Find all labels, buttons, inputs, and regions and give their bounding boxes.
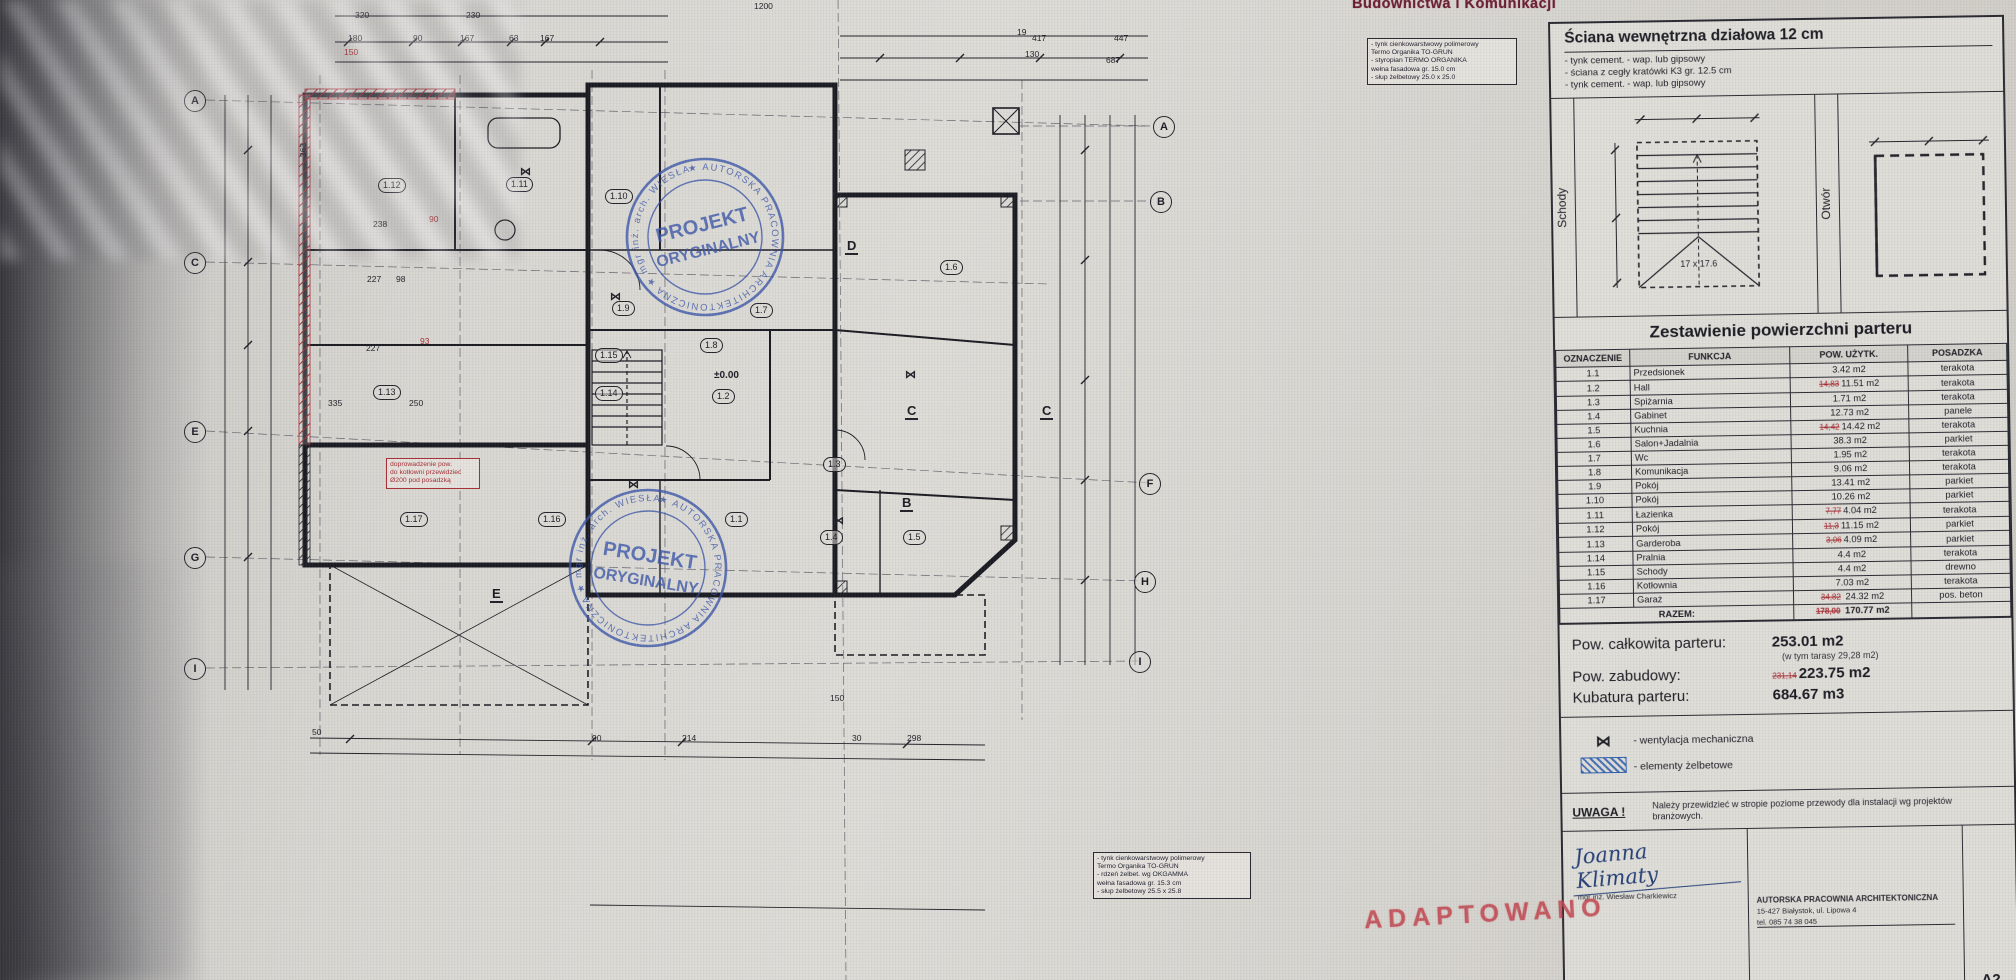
room-label: 1.3: [823, 457, 846, 472]
sect-label: D: [845, 238, 858, 255]
room-label: 1.7: [750, 303, 773, 318]
handwritten-signature: Joanna Klimaty: [1569, 831, 1740, 896]
room-label: 1.12: [378, 178, 406, 193]
spec-note-box: doprowadzenie pow.do kotłowni przewidzie…: [386, 458, 480, 489]
concrete-hatch-icon: [1581, 756, 1627, 773]
vent-label: ⋈: [610, 290, 621, 303]
built-area-line: Pow. zabudowy: 231,14 223.75 m2: [1572, 661, 2002, 685]
dimr-label: 150: [344, 47, 358, 57]
built-area-old: 231,14: [1772, 671, 1797, 680]
wall-spec-box: Ściana wewnętrzna działowa 12 cm - tynk …: [1550, 17, 2003, 99]
dim-label: 250: [409, 398, 423, 408]
dim-label: 30: [852, 733, 861, 743]
totals-section: Pow. całkowita parteru: 253.01 m2 (w tym…: [1559, 617, 2012, 717]
axis-label: E: [184, 421, 206, 443]
room-label: 1.10: [605, 189, 633, 204]
volume-value: 684.67 m3: [1772, 685, 1844, 703]
dim-label: 298: [907, 733, 921, 743]
wall-spec-title: Ściana wewnętrzna działowa 12 cm: [1564, 21, 1992, 53]
dim-label: 335: [328, 398, 342, 408]
total-area-label: Pow. całkowita parteru:: [1572, 633, 1772, 653]
room-label: 1.4: [820, 530, 843, 545]
volume-label: Kubatura parteru:: [1572, 686, 1772, 706]
room-label: 1.2: [712, 389, 735, 404]
room-label: 1.13: [373, 385, 401, 400]
dim-label: 19: [1017, 27, 1026, 37]
room-label: 1.11: [506, 177, 533, 192]
dim-label: 238: [373, 219, 387, 229]
dimension-chains: [225, 16, 1148, 910]
garage-pow-old: 34,82: [1821, 592, 1841, 601]
razem-value: 170.77 m2: [1845, 605, 1890, 616]
floor-plan-area: ★ AUTORSKA PRACOWNIA ARCHITEKTONICZNA ★ …: [0, 0, 1545, 980]
dim-label: 98: [396, 274, 405, 284]
dim-label: 417: [1032, 33, 1046, 43]
room-label: 1.1: [725, 512, 748, 527]
firm-info-cell: AUTORSKA PRACOWNIA ARCHITEKTONICZNA 15-4…: [1747, 825, 1964, 980]
title-block: Joanna Klimaty mgr inż. Wiesław Charkiew…: [1563, 824, 2016, 980]
garage-ozn: 1.17: [1559, 593, 1633, 609]
vent-label: ⋈: [520, 165, 531, 178]
dim-label: 63: [509, 33, 518, 43]
volume-line: Kubatura parteru: 684.67 m3: [1572, 682, 2002, 706]
room-label: 1.17: [400, 512, 428, 527]
blue-stamp-1: ★ AUTORSKA PRACOWNIA ARCHITEKTONICZNA ★ …: [610, 142, 799, 331]
sect-label: E: [490, 586, 503, 603]
axis-label: H: [1134, 571, 1156, 593]
firm-name: AUTORSKA PRACOWNIA ARCHITEKTONICZNA: [1757, 893, 1955, 905]
sect-label: C: [1040, 403, 1053, 420]
stairs-dim-note: 17 x 17.6: [1680, 258, 1717, 269]
ventilation-label: - wentylacja mechaniczna: [1633, 732, 1753, 746]
room-label: 1.15: [595, 348, 623, 363]
stamp-ring-text: ★ AUTORSKA PRACOWNIA ARCHITEKTONICZNA ★ …: [614, 146, 796, 328]
room-label: 1.16: [538, 512, 566, 527]
stairs-detail-cell: Schody: [1551, 95, 1818, 317]
legend-ventilation: ⋈ - wentylacja mechaniczna: [1573, 725, 2001, 750]
dim-label: 214: [682, 733, 696, 743]
dim-label: 90: [413, 33, 422, 43]
room-label: 1.14: [595, 386, 623, 401]
dimr-label: 93: [420, 336, 429, 346]
dim-label: 150: [830, 693, 844, 703]
area-table-section: Zestawienie powierzchni parteru OZNACZEN…: [1555, 311, 2012, 625]
dim-label: 227: [367, 274, 381, 284]
dim-label: 363: [298, 143, 308, 157]
spec-note-box: - tynk cienkowarstwowy polimerowy Termo …: [1367, 38, 1517, 85]
uwaga-text: Należy przewidzieć w stropie poziome prz…: [1652, 792, 2004, 823]
garage-posadzka: pos. beton: [1911, 587, 2010, 603]
opening-detail-label: Otwór: [1815, 94, 1841, 312]
garage-pow: 24.32 m2: [1845, 590, 1884, 601]
razem-label: RAZEM:: [1560, 605, 1794, 623]
built-area-label: Pow. zabudowy:: [1572, 665, 1772, 685]
sect-label: B: [900, 495, 913, 512]
dim-label: 90: [592, 733, 601, 743]
axis-label: A: [184, 90, 206, 112]
axis-label: I: [1129, 651, 1151, 673]
dim-label: 687: [1106, 55, 1120, 65]
opening-detail-cell: Otwór: [1815, 92, 2016, 313]
axis-label: A: [1153, 116, 1175, 138]
legend-section: ⋈ - wentylacja mechaniczna - elementy że…: [1561, 710, 2014, 793]
axis-label: G: [184, 547, 206, 569]
room-label: 1.5: [903, 530, 926, 545]
vent-label: ⋈: [833, 514, 844, 527]
uwaga-label: UWAGA !: [1572, 798, 1642, 824]
dim-label: 167: [460, 33, 474, 43]
concrete-label: - elementy żelbetowe: [1634, 759, 1733, 773]
dim-label: 180: [348, 33, 362, 43]
stairs-detail-label: Schody: [1551, 99, 1577, 317]
floorplan-sheet-photo: ★ AUTORSKA PRACOWNIA ARCHITEKTONICZNA ★ …: [0, 0, 2016, 980]
dim-label: 130: [1025, 49, 1039, 59]
col-oznaczenie: OZNACZENIE: [1556, 349, 1630, 367]
room-label: 1.9: [612, 301, 635, 316]
stairs-detail-drawing: 17 x 17.6: [1574, 95, 1817, 317]
vent-label: ⋈: [628, 478, 639, 491]
dim-label: 447: [1114, 33, 1128, 43]
room-label: 1.8: [700, 338, 723, 353]
dim-label: 167: [540, 33, 554, 43]
axis-label: I: [184, 658, 206, 680]
firm-phone: tel. 085 74 38 045: [1757, 915, 1955, 928]
firm-address: 15-427 Białystok, ul. Lipowa 4: [1757, 904, 1955, 916]
dimr-label: 90: [429, 214, 438, 224]
built-area-value: 223.75 m2: [1799, 664, 1871, 682]
room-label: 1.6: [940, 260, 963, 275]
col-posadzka: POSADZKA: [1908, 343, 2007, 362]
legend-concrete: - elementy żelbetowe: [1574, 750, 2002, 777]
grid-lines: [206, 0, 1152, 980]
drawing-info-panel: Ściana wewnętrzna działowa 12 cm - tynk …: [1548, 15, 2016, 980]
axis-label: B: [1150, 191, 1172, 213]
svg-text:★ AUTORSKA PRACOWNIA ARCHITEKT: ★ AUTORSKA PRACOWNIA ARCHITEKTONICZNA ★ …: [614, 146, 796, 328]
spec-note-box: - tynk cienkowarstwowy polimerowy Termo …: [1093, 852, 1251, 899]
total-area-value: 253.01 m2: [1772, 632, 1844, 650]
sect-label: C: [905, 403, 918, 420]
total-area-note: (w tym tarasy 29,28 m2): [1782, 647, 2002, 660]
floor-plan-drawing: ★ AUTORSKA PRACOWNIA ARCHITEKTONICZNA ★ …: [0, 0, 1545, 980]
opening-detail-drawing: [1838, 92, 2016, 313]
detail-diagrams: Schody: [1551, 92, 2006, 318]
axis-label: F: [1139, 473, 1161, 495]
sheet-format: A2: [1962, 824, 2016, 980]
dim-label: 320: [355, 10, 369, 20]
ventilation-symbol-icon: ⋈: [1573, 731, 1633, 750]
dim-label: 230: [466, 10, 480, 20]
office-header-stamp: Budownictwa i Komunikacji: [1352, 0, 1556, 12]
dim-label: 1200: [754, 1, 773, 11]
vent-label: ⋈: [905, 368, 916, 381]
area-table: OZNACZENIE FUNKCJA POW. UŻYTK. POSADZKA …: [1555, 343, 2011, 624]
col-pow-uzytk: POW. UŻYTK.: [1790, 345, 1908, 364]
razem-old: 178,00: [1816, 606, 1841, 615]
dim-label: 50: [312, 727, 321, 737]
axis-label: C: [184, 252, 206, 274]
level-label: ±0.00: [714, 370, 739, 381]
dim-label: 227: [366, 343, 380, 353]
